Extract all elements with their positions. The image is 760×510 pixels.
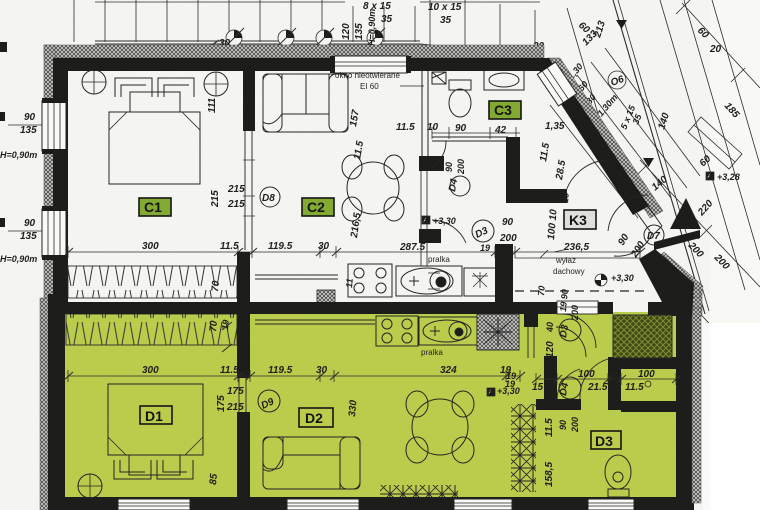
svg-text:+3,28: +3,28: [717, 172, 740, 182]
svg-text:20: 20: [709, 44, 722, 55]
